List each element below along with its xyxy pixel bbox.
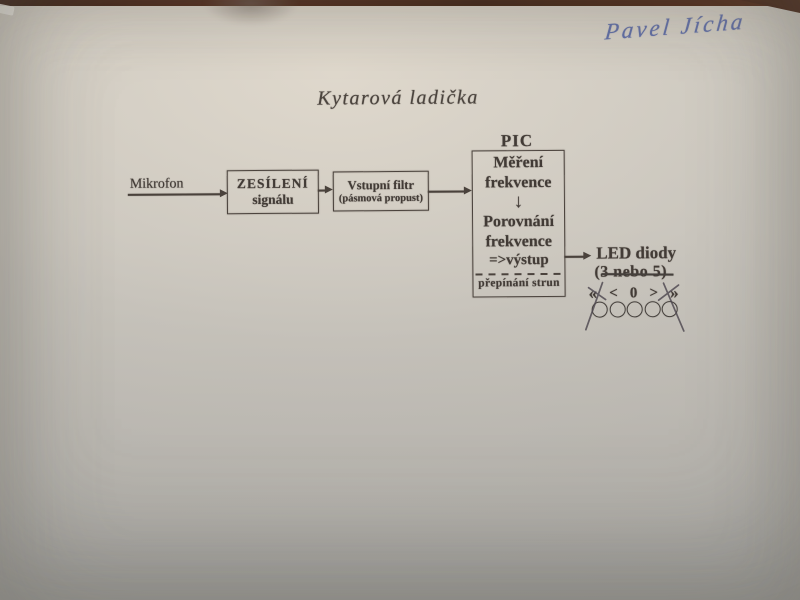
arrowhead-amp-to-filter [325, 185, 333, 193]
filter-box-line1: Vstupní filtr [348, 178, 414, 193]
arrow-line-mikrofon-to-amp [128, 193, 222, 195]
led-direction-symbols: « < 0 > » [589, 285, 679, 303]
box-input-filter: Vstupní filtr (pásmová propust) [333, 171, 429, 212]
led-symbol-far-right: » [670, 285, 679, 302]
arrowhead-filter-to-pic [464, 186, 472, 194]
pic-compare-line2: frekvence [473, 231, 564, 251]
led-symbol-center: 0 [630, 285, 638, 302]
led-symbol-left: < [609, 285, 618, 302]
pic-measure-line1: Měření [473, 153, 564, 173]
diagram-layer: Pavel Jícha Kytarová ladička Mikrofon ZE… [0, 0, 800, 600]
filter-box-line2: (pásmová propust) [339, 193, 423, 205]
label-mikrofon: Mikrofon [130, 177, 184, 193]
amp-box-line1: ZESÍLENÍ [237, 176, 309, 193]
page-title: Kytarová ladička [317, 86, 479, 110]
down-arrow-icon: ↓ [473, 192, 564, 213]
photographed-paper-sheet: Pavel Jícha Kytarová ladička Mikrofon ZE… [0, 0, 800, 600]
arrow-line-filter-to-pic [428, 191, 465, 193]
pic-output-line: =>výstup [473, 251, 564, 271]
led-circle [609, 301, 625, 317]
led-symbol-far-left: « [589, 286, 598, 303]
pic-measure-line2: frekvence [473, 172, 564, 192]
pic-label: PIC [471, 131, 562, 152]
led-circle [592, 302, 608, 318]
arrow-line-pic-to-led [564, 256, 585, 258]
led-circle [627, 301, 643, 317]
pic-bottom-label: přepínání strun [473, 277, 564, 290]
pic-compare-line1: Porovnání [473, 212, 564, 232]
box-amplifier: ZESÍLENÍ signálu [227, 170, 319, 215]
led-circle [644, 301, 660, 317]
handwritten-signature: Pavel Jícha [604, 9, 747, 46]
pic-content: Měření frekvence ↓ Porovnání frekvence =… [473, 153, 565, 271]
led-circle [662, 301, 678, 317]
box-pic: Měření frekvence ↓ Porovnání frekvence =… [472, 150, 566, 298]
arrowhead-pic-to-led [583, 252, 591, 260]
amp-box-line2: signálu [252, 192, 293, 208]
led-title: LED diody [596, 243, 676, 264]
led-symbol-right: > [649, 285, 658, 302]
pic-dashed-divider [475, 273, 562, 276]
led-circles-row [592, 301, 678, 318]
